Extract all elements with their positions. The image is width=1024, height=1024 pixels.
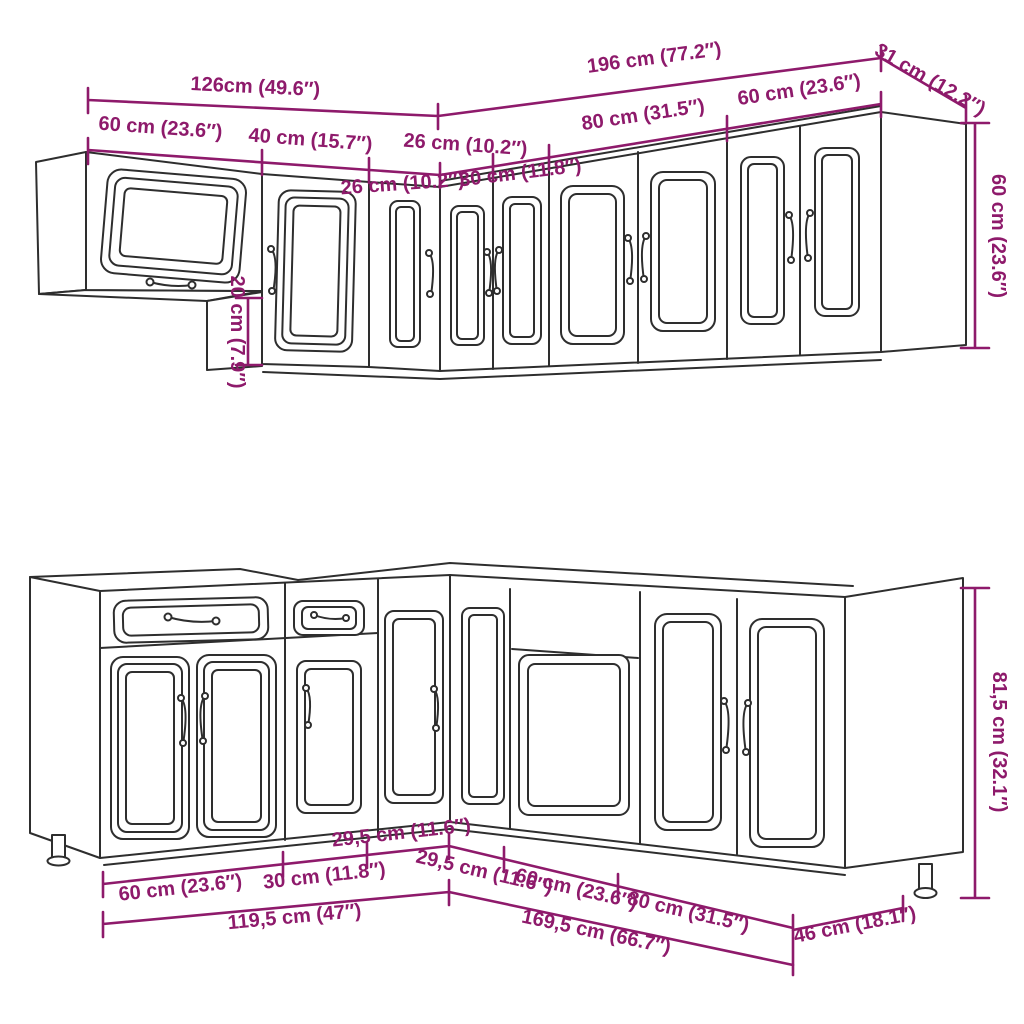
dim-label-60-upper-left: 60 cm (23.6″) <box>98 113 223 144</box>
dim-label-60-upper-right: 60 cm (23.6″) <box>736 70 862 110</box>
dim-label-81-height: 81,5 cm (32.1″) <box>988 672 1010 813</box>
cabinet-leg <box>915 864 937 898</box>
dim-label-26a: 26 cm (10.2″) <box>403 130 528 161</box>
dim-label-31: 31 cm (12.2″) <box>871 39 989 120</box>
kitchen-cabinet-dimension-diagram: 126cm (49.6″) 196 cm (77.2″) 31 cm (12.2… <box>0 0 1024 1024</box>
dim-label-126: 126cm (49.6″) <box>190 73 321 101</box>
dim-label-119: 119,5 cm (47″) <box>227 900 363 934</box>
dim-label-20-offset: 20 cm (7.9″) <box>226 276 248 389</box>
lower-cabinet-run <box>30 563 963 898</box>
lower-left-side-panel <box>30 577 100 858</box>
dim-label-80-lower: 80 cm (31.5″) <box>625 887 751 936</box>
lower-cabinet-30 <box>294 601 364 813</box>
upper-cabinet-26-left <box>369 182 440 371</box>
upper-cabinet-60-horizontal <box>86 152 262 291</box>
dim-lower-height <box>961 588 989 898</box>
lower-cabinet-29-left <box>385 611 443 803</box>
dim-label-60-height: 60 cm (23.6″) <box>987 174 1009 298</box>
upper-left-side-panel <box>36 152 86 294</box>
lower-right-run <box>450 575 845 868</box>
lower-right-side-panel <box>845 578 963 868</box>
upper-right-side-panel <box>881 112 966 352</box>
dim-label-40: 40 cm (15.7″) <box>248 124 373 155</box>
dim-label-80-upper: 80 cm (31.5″) <box>580 95 706 135</box>
upper-cabinet-40 <box>262 174 369 367</box>
diagram-canvas: 126cm (49.6″) 196 cm (77.2″) 31 cm (12.2… <box>0 0 1024 1024</box>
dim-label-196: 196 cm (77.2″) <box>586 38 723 77</box>
dim-label-46: 46 cm (18.1″) <box>792 902 918 947</box>
